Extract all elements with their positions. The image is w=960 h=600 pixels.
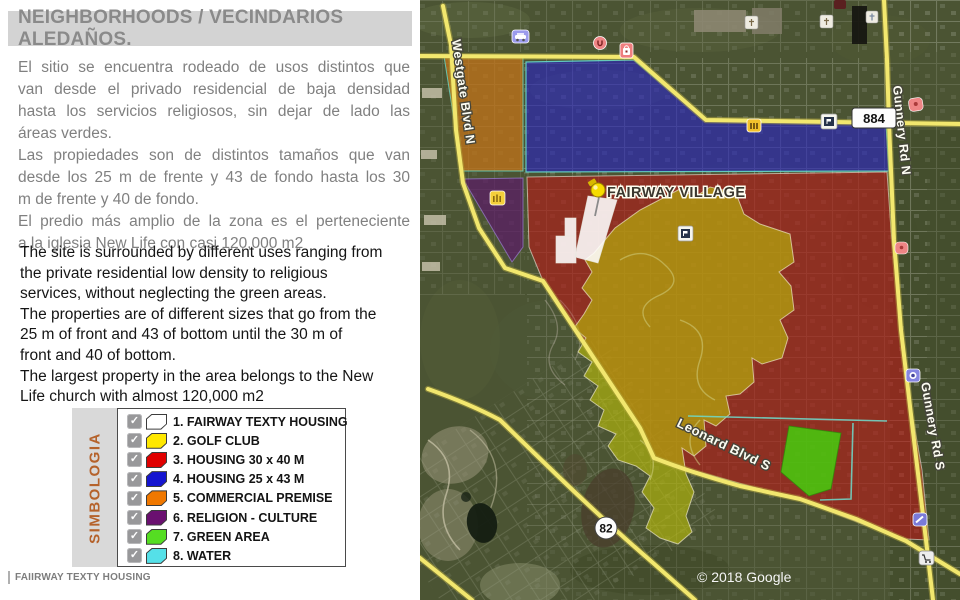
pets-icon-mid[interactable] — [895, 242, 908, 254]
poi-icon-top-edge[interactable] — [834, 0, 846, 9]
checkbox-icon[interactable]: ✓ — [127, 472, 142, 487]
checkbox-icon[interactable]: ✓ — [127, 452, 142, 467]
paragraph-line: áreas verdes. — [18, 123, 410, 145]
checkbox-icon[interactable]: ✓ — [127, 491, 142, 506]
checkbox-icon[interactable]: ✓ — [127, 529, 142, 544]
legend-item[interactable]: ✓ 4. HOUSING 25 x 43 M — [127, 470, 345, 489]
legend-label: 7. GREEN AREA — [173, 530, 270, 544]
route-shield-884: 884 — [852, 108, 896, 128]
checkbox-icon[interactable]: ✓ — [127, 548, 142, 563]
polygon-swatch-icon — [146, 452, 167, 468]
checkbox-icon[interactable]: ✓ — [127, 414, 142, 429]
cross-icon-north[interactable] — [866, 11, 878, 23]
legend-item[interactable]: ✓ 1. FAIRWAY TEXTY HOUSING — [127, 412, 345, 431]
church-icon-west[interactable] — [490, 191, 505, 205]
legend-item[interactable]: ✓ 3. HOUSING 30 x 40 M — [127, 450, 345, 469]
checkbox-icon[interactable]: ✓ — [127, 510, 142, 525]
legend-item[interactable]: ✓ 7. GREEN AREA — [127, 527, 345, 546]
legend-label: 8. WATER — [173, 549, 231, 563]
gas-station-icon[interactable] — [594, 37, 607, 50]
paragraph-line: El sitio se encuentra rodeado de usos di… — [18, 57, 410, 79]
legend-item[interactable]: ✓ 8. WATER — [127, 546, 345, 565]
fairway-village-label: FAIRWAY VILLAGE — [607, 185, 746, 201]
legend-label: 3. HOUSING 30 x 40 M — [173, 453, 304, 467]
bus-stop-icon[interactable] — [906, 369, 920, 382]
paragraph-line: m de frente y 40 de fondo. — [18, 189, 410, 211]
slide: NEIGHBORHOODS / VECINDARIOS ALEDAÑOS. El… — [0, 0, 960, 600]
satellite-map[interactable]: Westgate Blvd N Gunnery Rd N Gunnery Rd … — [420, 0, 960, 600]
shopping-cart-icon[interactable] — [919, 551, 934, 565]
paragraph-line: hasta los servicios religiosos, sin deja… — [18, 101, 410, 123]
school-icon[interactable] — [821, 114, 837, 129]
paragraph-line: services, without neglecting the green a… — [20, 284, 416, 305]
polygon-swatch-icon — [146, 510, 167, 526]
paragraph-line: The site is surrounded by different uses… — [20, 243, 416, 264]
legend-item[interactable]: ✓ 5. COMMERCIAL PREMISE — [127, 489, 345, 508]
golf-clubhouse-icon[interactable] — [678, 226, 693, 241]
slide-footer: FAIIRWAY TEXTY HOUSING — [8, 571, 151, 584]
legend-label: 1. FAIRWAY TEXTY HOUSING — [173, 415, 348, 429]
paragraph-line: the private residential low density to r… — [20, 264, 416, 285]
legend-vertical-title: SIMBOLOGIA — [86, 432, 103, 544]
legend-label: 4. HOUSING 25 x 43 M — [173, 472, 304, 486]
polygon-swatch-icon — [146, 433, 167, 449]
footer-divider — [8, 571, 10, 584]
legend-item[interactable]: ✓ 6. RELIGION - CULTURE — [127, 508, 345, 527]
paragraph-line: The largest property in the area belongs… — [20, 367, 416, 388]
church-icon-north-2[interactable] — [820, 15, 833, 28]
paragraph-line: Las propiedades son de distintos tamaños… — [18, 145, 410, 167]
legend-label: 5. COMMERCIAL PREMISE — [173, 491, 333, 505]
paragraph-line: The properties are of different sizes th… — [20, 305, 416, 326]
pets-icon-north[interactable] — [908, 97, 924, 112]
repair-wrench-icon[interactable] — [913, 513, 927, 526]
paragraph-line: El predio más amplio de la zona es el pe… — [18, 211, 410, 233]
svg-text:82: 82 — [599, 522, 613, 536]
paragraph-line: front and 40 of bottom. — [20, 346, 416, 367]
polygon-swatch-icon — [146, 414, 167, 430]
paragraph-line: 25 m of front and 43 of bottom until the… — [20, 325, 416, 346]
shopping-bag-icon[interactable] — [620, 43, 633, 58]
legend-label: 2. GOLF CLUB — [173, 434, 260, 448]
checkbox-icon[interactable]: ✓ — [127, 433, 142, 448]
svg-text:884: 884 — [863, 111, 885, 126]
spanish-paragraph: El sitio se encuentra rodeado de usos di… — [18, 57, 410, 255]
legend: ✓ 1. FAIRWAY TEXTY HOUSING ✓ 2. GOLF CLU… — [117, 408, 346, 567]
page-title: NEIGHBORHOODS / VECINDARIOS ALEDAÑOS. — [18, 7, 412, 51]
footer-text: FAIIRWAY TEXTY HOUSING — [15, 572, 151, 583]
polygon-swatch-icon — [146, 490, 167, 506]
store-icon[interactable] — [747, 119, 761, 132]
paragraph-line: van desde el privado residencial de baja… — [18, 79, 410, 101]
legend-item[interactable]: ✓ 2. GOLF CLUB — [127, 431, 345, 450]
polygon-swatch-icon — [146, 471, 167, 487]
polygon-swatch-icon — [146, 548, 167, 564]
legend-side-strip: SIMBOLOGIA — [72, 408, 117, 567]
map-attribution: © 2018 Google — [697, 569, 792, 585]
english-paragraph: The site is surrounded by different uses… — [20, 243, 416, 408]
route-shield-82: 82 — [595, 517, 617, 539]
title-bar: NEIGHBORHOODS / VECINDARIOS ALEDAÑOS. — [8, 11, 412, 46]
text-panel: NEIGHBORHOODS / VECINDARIOS ALEDAÑOS. El… — [0, 0, 420, 600]
polygon-swatch-icon — [146, 529, 167, 545]
legend-label: 6. RELIGION - CULTURE — [173, 511, 317, 525]
paragraph-line: desde los 25 m de frente y 43 de fondo h… — [18, 167, 410, 189]
church-icon-north-1[interactable] — [745, 16, 758, 29]
car-dealership-icon[interactable] — [512, 30, 529, 43]
paragraph-line: Life church with almost 120,000 m2 — [20, 387, 416, 408]
